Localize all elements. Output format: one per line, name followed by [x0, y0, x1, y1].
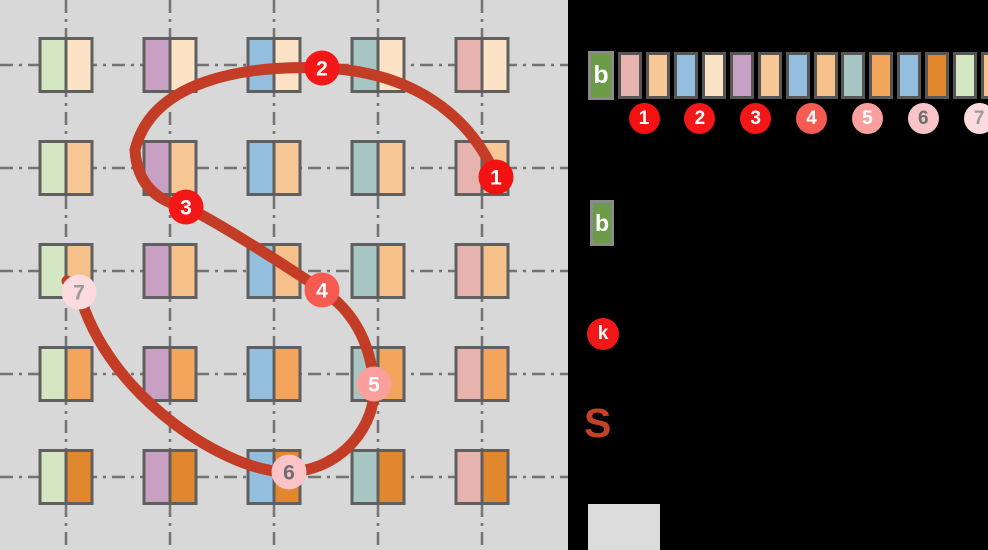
grid-cell-r5c4-right: [378, 451, 404, 504]
legend-s-label: S: [584, 403, 611, 444]
sequence-box-13: [953, 52, 977, 99]
sequence-start-token: b: [588, 51, 614, 100]
slide-canvas: 1234567 b 1234567 b k S: [0, 0, 988, 550]
grid-cell-r5c1-left: [40, 451, 66, 504]
sequence-box-8: [814, 52, 838, 99]
grid-cell-r2c1-left: [40, 142, 66, 195]
grid-cell-r2c2-right: [170, 142, 196, 195]
grid-cell-r3c4-left: [352, 245, 378, 298]
sequence-number-6: 6: [908, 103, 939, 134]
grid-cell-r4c1-left: [40, 348, 66, 401]
bottom-panel-fragment: [588, 504, 660, 550]
grid-cell-r4c2-right: [170, 348, 196, 401]
sequence-box-11: [897, 52, 921, 99]
legend-b-token: b: [590, 200, 614, 246]
path-marker-label-2: 2: [316, 58, 328, 81]
grid-cell-r1c1-right: [66, 39, 92, 92]
grid-cell-r3c2-right: [170, 245, 196, 298]
grid-cell-r5c3-left: [248, 451, 274, 504]
sequence-number-1: 1: [629, 103, 660, 134]
sequence-number-5: 5: [852, 103, 883, 134]
sequence-box-14: [981, 52, 988, 99]
sequence-box-9: [841, 52, 865, 99]
sequence-b-label: b: [593, 61, 608, 90]
grid-cell-r4c1-right: [66, 348, 92, 401]
grid-cell-r3c2-left: [144, 245, 170, 298]
path-marker-label-5: 5: [368, 374, 380, 397]
path-marker-label-6: 6: [283, 462, 295, 485]
grid-cell-r4c5-right: [482, 348, 508, 401]
sequence-box-7: [786, 52, 810, 99]
grid-cell-r3c4-right: [378, 245, 404, 298]
grid-cell-r2c4-right: [378, 142, 404, 195]
grid-cell-r5c5-right: [482, 451, 508, 504]
sequence-number-2: 2: [684, 103, 715, 134]
sequence-box-10: [869, 52, 893, 99]
grid-cell-r5c1-right: [66, 451, 92, 504]
grid-cell-r5c2-left: [144, 451, 170, 504]
grid-cell-r2c3-right: [274, 142, 300, 195]
grid-cell-r1c5-right: [482, 39, 508, 92]
grid-cell-r5c2-right: [170, 451, 196, 504]
sequence-box-6: [758, 52, 782, 99]
sequence-box-3: [674, 52, 698, 99]
sequence-box-12: [925, 52, 949, 99]
grid-cell-r3c5-right: [482, 245, 508, 298]
grid-cell-r5c4-left: [352, 451, 378, 504]
sequence-number-4: 4: [796, 103, 827, 134]
grid-cell-r1c2-left: [144, 39, 170, 92]
grid-cell-r3c5-left: [456, 245, 482, 298]
grid-cell-r2c3-left: [248, 142, 274, 195]
grid-panel: 1234567: [0, 0, 568, 550]
legend-k-label: k: [598, 323, 609, 345]
grid-diagram: 1234567: [0, 0, 568, 550]
path-marker-label-1: 1: [490, 167, 502, 190]
sequence-box-1: [618, 52, 642, 99]
grid-cell-r4c3-left: [248, 348, 274, 401]
path-marker-label-3: 3: [180, 197, 192, 220]
legend-k-marker: k: [587, 318, 619, 350]
path-marker-label-4: 4: [316, 280, 328, 303]
sequence-box-5: [730, 52, 754, 99]
grid-cell-r2c4-left: [352, 142, 378, 195]
path-marker-label-7: 7: [73, 282, 85, 305]
grid-cell-r4c3-right: [274, 348, 300, 401]
grid-cell-r1c5-left: [456, 39, 482, 92]
sequence-box-2: [646, 52, 670, 99]
grid-cell-r5c5-left: [456, 451, 482, 504]
grid-cell-r1c1-left: [40, 39, 66, 92]
grid-cell-r2c1-right: [66, 142, 92, 195]
legend-b-label: b: [595, 210, 609, 237]
sequence-number-7: 7: [964, 103, 988, 134]
grid-cell-r1c4-left: [352, 39, 378, 92]
grid-cell-r4c5-left: [456, 348, 482, 401]
sequence-number-3: 3: [740, 103, 771, 134]
sequence-box-4: [702, 52, 726, 99]
grid-cell-r4c2-left: [144, 348, 170, 401]
